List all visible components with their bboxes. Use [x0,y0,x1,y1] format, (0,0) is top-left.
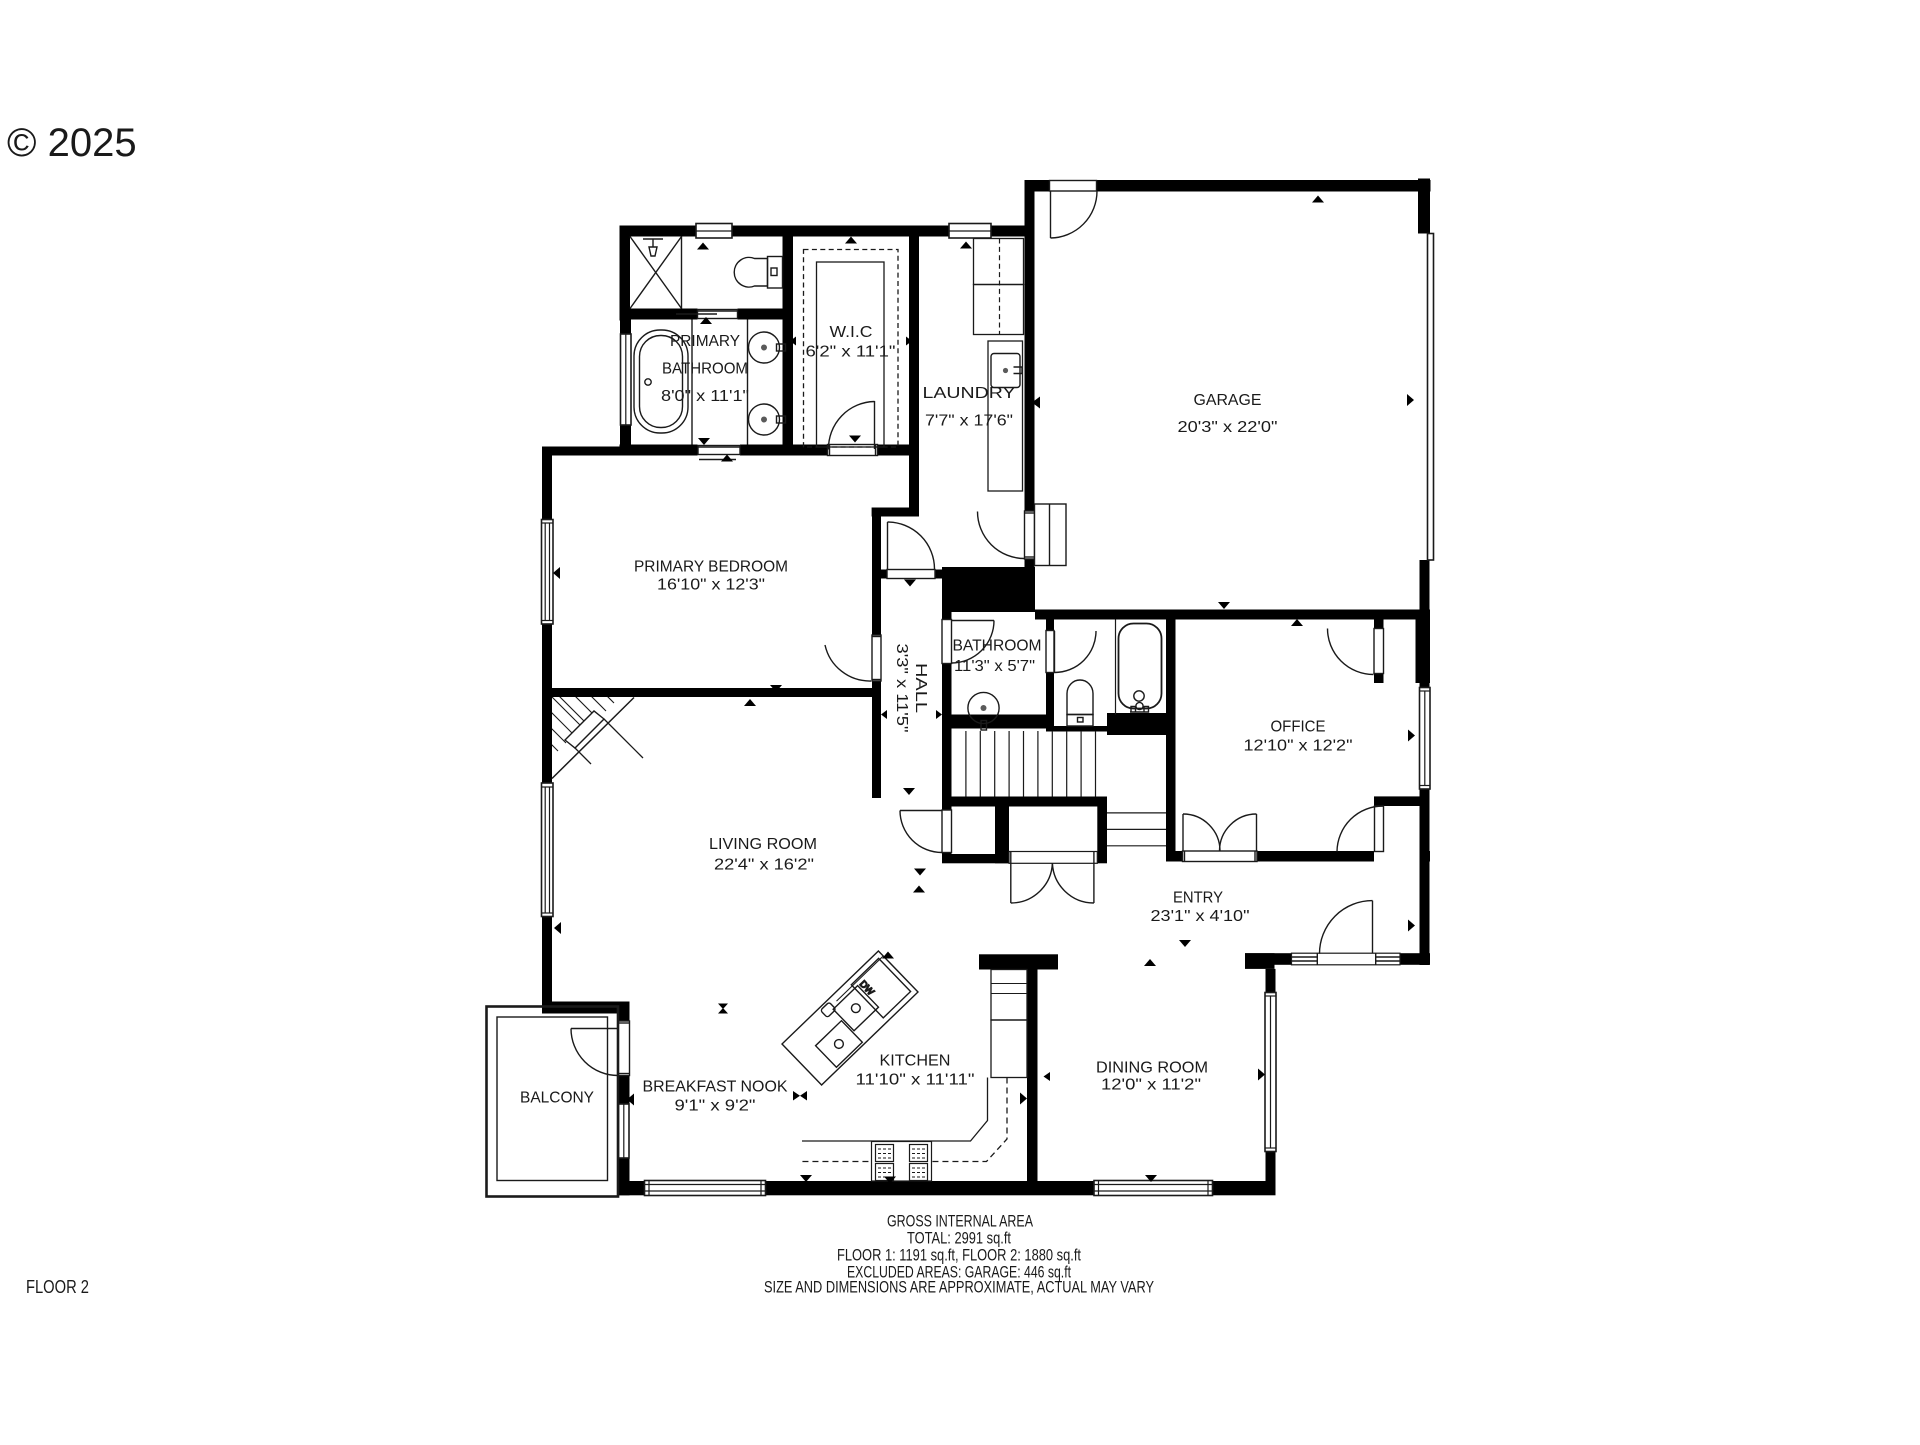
svg-text:16'10" x 12'3": 16'10" x 12'3" [657,577,765,594]
svg-text:DINING ROOM: DINING ROOM [1096,1060,1208,1077]
svg-text:PRIMARY BEDROOM: PRIMARY BEDROOM [634,559,788,576]
svg-text:11'3" x 5'7": 11'3" x 5'7" [954,658,1035,675]
svg-text:9'1" x 9'2": 9'1" x 9'2" [675,1098,756,1115]
svg-text:FLOOR 2: FLOOR 2 [26,1277,89,1297]
svg-text:LIVING ROOM: LIVING ROOM [709,836,817,853]
svg-text:BALCONY: BALCONY [520,1090,594,1107]
svg-text:PRIMARY: PRIMARY [670,333,740,350]
svg-text:12'0" x 11'2": 12'0" x 11'2" [1101,1077,1201,1094]
svg-text:BATHROOM: BATHROOM [662,361,748,378]
svg-text:SIZE AND DIMENSIONS ARE APPROX: SIZE AND DIMENSIONS ARE APPROXIMATE, ACT… [764,1278,1154,1297]
svg-text:OFFICE: OFFICE [1271,719,1326,736]
svg-text:23'1" x 4'10": 23'1" x 4'10" [1151,908,1250,925]
svg-text:BATHROOM: BATHROOM [953,638,1042,655]
svg-text:12'10" x 12'2": 12'10" x 12'2" [1244,738,1353,755]
svg-text:BREAKFAST NOOK: BREAKFAST NOOK [643,1079,788,1096]
svg-text:11'10" x 11'11": 11'10" x 11'11" [856,1072,975,1089]
svg-text:3'3" x 11'5": 3'3" x 11'5" [893,644,910,733]
svg-text:LAUNDRY: LAUNDRY [923,385,1016,402]
svg-text:W.I.C: W.I.C [830,324,873,341]
svg-text:© 2025: © 2025 [7,121,137,165]
svg-text:HALL: HALL [912,663,929,713]
svg-text:ENTRY: ENTRY [1173,890,1223,907]
svg-text:8'0" x 11'1": 8'0" x 11'1" [661,388,749,405]
svg-text:GARAGE: GARAGE [1194,392,1262,409]
svg-text:KITCHEN: KITCHEN [880,1053,951,1070]
svg-text:7'7" x 17'6": 7'7" x 17'6" [925,413,1013,430]
svg-text:22'4" x 16'2": 22'4" x 16'2" [714,857,814,874]
svg-text:20'3" x 22'0": 20'3" x 22'0" [1178,419,1278,436]
svg-text:6'2" x 11'1": 6'2" x 11'1" [806,344,896,361]
